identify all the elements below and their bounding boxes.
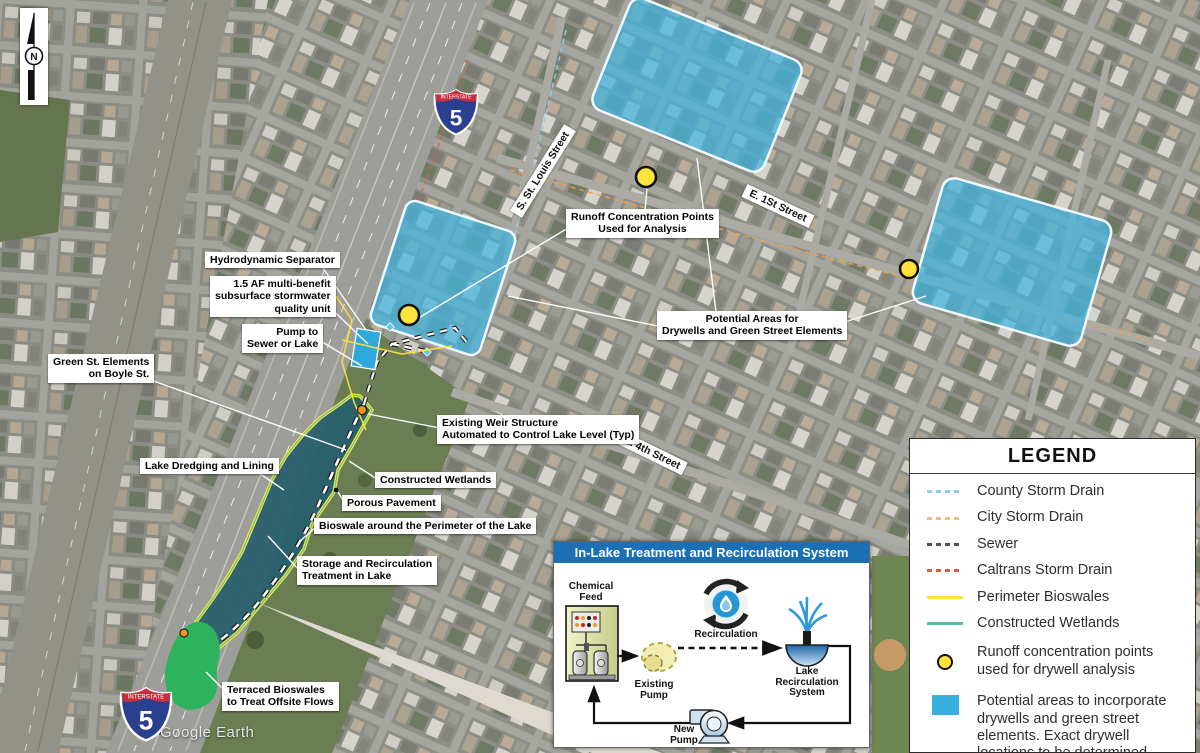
chemical-feed-unit	[566, 606, 618, 681]
legend-panel: LEGEND County Storm Drain City Storm Dra…	[909, 438, 1196, 753]
legend-item-county-storm-drain: County Storm Drain	[926, 483, 1195, 500]
weir-marker	[358, 406, 367, 415]
weir-marker	[180, 629, 188, 637]
lake-recirculation-symbol	[786, 597, 828, 666]
caltrans-storm-drain-swatch	[927, 569, 963, 572]
existing-pump-label: Existing Pump	[624, 680, 684, 701]
constructed-wetlands-swatch	[927, 622, 963, 625]
callout-green-st-elements: Green St. Elements on Boyle St.	[48, 354, 154, 383]
legend-item-sewer: Sewer	[926, 536, 1195, 553]
stormwater-plan-map: N INTERSTATE 5 INTERSTATE 5 S. St. Louis…	[0, 0, 1200, 753]
legend-item-caltrans-storm-drain: Caltrans Storm Drain	[926, 562, 1195, 579]
callout-bioswale-perimeter: Bioswale around the Perimeter of the Lak…	[314, 518, 536, 534]
legend-item-runoff-points: Runoff concentration points used for dry…	[926, 644, 1195, 679]
north-label: N	[30, 52, 37, 63]
runoff-dot	[636, 167, 656, 187]
callout-hydrodynamic-separator: Hydrodynamic Separator	[205, 252, 340, 268]
callout-storage-recirculation: Storage and Recirculation Treatment in L…	[297, 556, 437, 585]
stormwater-quality-unit	[351, 328, 381, 369]
callout-porous-pavement: Porous Pavement	[342, 495, 441, 511]
runoff-dot	[399, 305, 419, 325]
legend-item-constructed-wetlands: Constructed Wetlands	[926, 615, 1195, 632]
north-arrow: N	[20, 8, 48, 105]
porous-pavement-marker	[334, 488, 339, 493]
drywell-area-swatch	[932, 695, 959, 715]
runoff-dot	[900, 260, 918, 278]
interstate-5-shield-north: INTERSTATE 5	[433, 88, 479, 136]
sewer-swatch	[927, 543, 963, 546]
legend-item-potential-areas: Potential areas to incorporate drywells …	[926, 693, 1195, 753]
callout-existing-weir: Existing Weir Structure Automated to Con…	[437, 415, 639, 444]
callout-terraced-bioswales: Terraced Bioswales to Treat Offsite Flow…	[222, 682, 339, 711]
lake-recirculation-label: Lake Recirculation System	[767, 667, 847, 699]
legend-divider	[910, 473, 1195, 474]
legend-item-city-storm-drain: City Storm Drain	[926, 509, 1195, 526]
recirculation-icon	[703, 580, 749, 628]
callout-lake-dredging: Lake Dredging and Lining	[140, 458, 279, 474]
callout-pump-to-sewer: Pump to Sewer or Lake	[242, 324, 323, 353]
legend-item-perimeter-bioswales: Perimeter Bioswales	[926, 589, 1195, 606]
inset-treatment-diagram: In-Lake Treatment and Recirculation Syst…	[553, 541, 870, 748]
runoff-dot-swatch	[937, 654, 953, 670]
callout-runoff-points: Runoff Concentration Points Used for Ana…	[566, 209, 719, 238]
perimeter-bioswales-swatch	[927, 596, 963, 599]
existing-pump-symbol	[642, 643, 676, 671]
google-earth-watermark: Google Earth	[160, 724, 254, 741]
interstate-text: INTERSTATE	[128, 694, 164, 700]
county-storm-drain-swatch	[927, 490, 963, 493]
interstate-text: INTERSTATE	[440, 95, 472, 101]
route-number: 5	[139, 706, 154, 736]
recirculation-label: Recirculation	[686, 630, 766, 641]
new-pump-label: New Pump	[654, 725, 714, 746]
route-number: 5	[450, 105, 463, 130]
chemical-feed-label: Chemical Feed	[561, 582, 621, 603]
city-storm-drain-swatch	[927, 517, 963, 520]
inset-title: In-Lake Treatment and Recirculation Syst…	[554, 542, 869, 563]
callout-quality-unit: 1.5 AF multi-benefit subsurface stormwat…	[210, 276, 336, 317]
legend-title: LEGEND	[910, 439, 1195, 468]
callout-potential-areas: Potential Areas for Drywells and Green S…	[657, 311, 847, 340]
callout-constructed-wetlands: Constructed Wetlands	[375, 472, 496, 488]
